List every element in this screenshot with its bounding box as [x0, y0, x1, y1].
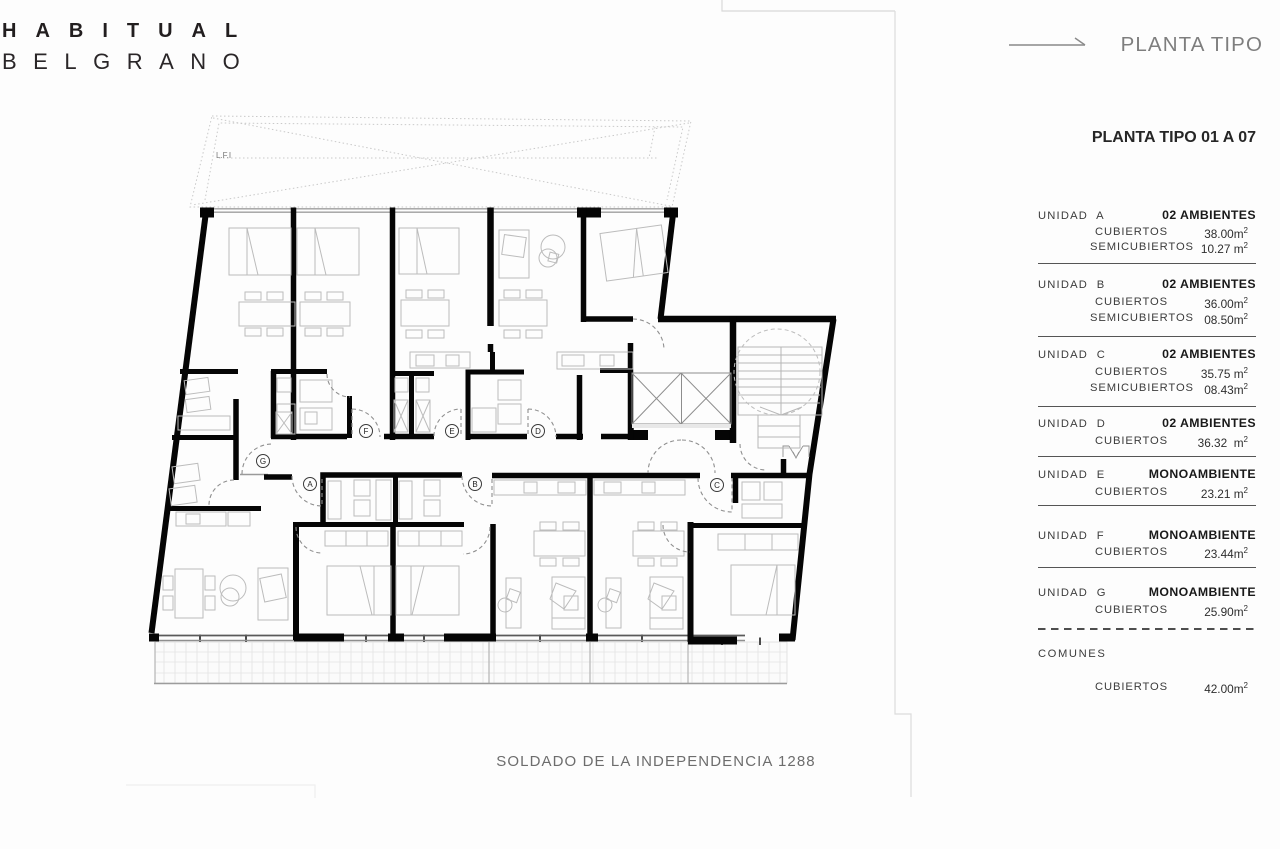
svg-text:B: B	[472, 480, 477, 489]
svg-text:F: F	[364, 427, 369, 436]
svg-text:G: G	[260, 457, 266, 466]
svg-text:E: E	[449, 427, 454, 436]
svg-text:D: D	[535, 427, 541, 436]
svg-text:L.F.I: L.F.I	[216, 151, 231, 160]
svg-text:A: A	[307, 480, 313, 489]
svg-text:C: C	[714, 481, 720, 490]
